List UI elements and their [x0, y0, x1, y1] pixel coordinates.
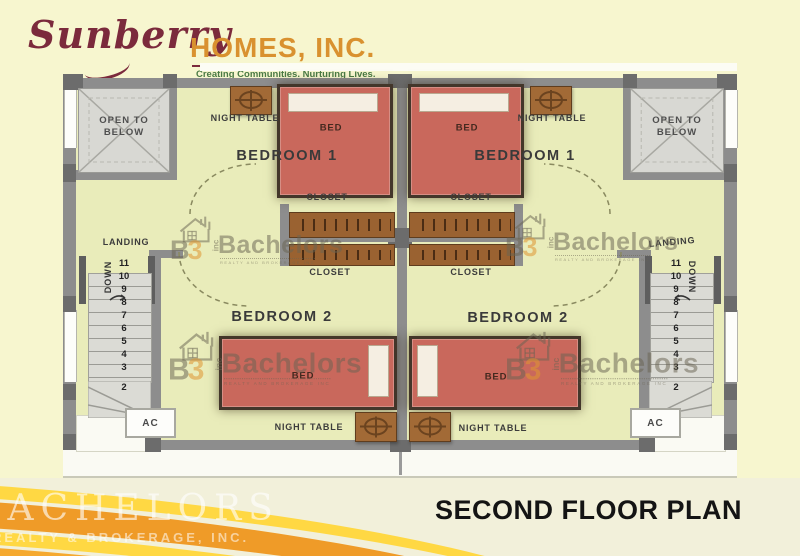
window-left-stair	[64, 310, 77, 382]
watermark-name: Bachelors	[553, 228, 678, 257]
bedroom1-label-right: BEDROOM 1	[474, 148, 575, 164]
closet-shelf	[409, 212, 515, 238]
column	[63, 384, 76, 400]
column	[724, 164, 737, 182]
footer-watermark-tagline: REALTY & BROKERAGE, INC.	[0, 530, 249, 545]
watermark-name: Bachelors	[218, 231, 343, 260]
page-title: SECOND FLOOR PLAN	[435, 495, 742, 526]
column	[63, 296, 76, 312]
watermark-tagline: REALTY AND BROKERAGE INC	[220, 258, 315, 265]
column	[639, 438, 655, 452]
down-label-left: DOWN	[103, 257, 115, 297]
closet-divider	[409, 238, 515, 242]
open-to-below-left: OPEN TO BELOW	[78, 88, 170, 173]
night-table-label: NIGHT TABLE	[459, 423, 528, 433]
column	[63, 164, 76, 182]
lamp-icon	[231, 87, 271, 114]
bedroom2-label-right: BEDROOM 2	[467, 310, 568, 326]
lamp-icon	[356, 413, 396, 441]
night-table-label: NIGHT TABLE	[211, 113, 280, 123]
column	[724, 384, 737, 400]
watermark-monogram: B3	[505, 232, 536, 263]
open-to-below-right: OPEN TO BELOW	[630, 88, 724, 173]
ac-label: AC	[647, 418, 663, 429]
page: Sunberry HOMES, INC. Creating Communitie…	[0, 0, 800, 556]
pillow	[368, 345, 389, 397]
night-table-bedroom1-right	[530, 86, 572, 115]
hanger-ticks	[413, 250, 511, 260]
watermark-name: Bachelors	[559, 348, 699, 380]
column	[724, 296, 737, 312]
down-arrow-icon	[673, 292, 691, 302]
column	[145, 438, 161, 452]
bedroom2-label-left: BEDROOM 2	[231, 309, 332, 325]
window-left-top	[64, 90, 77, 148]
door-arc-bedroom1-left	[188, 162, 258, 216]
bed-label: BED	[320, 123, 342, 134]
closet-label: CLOSET	[450, 267, 491, 277]
ac-unit-right: AC	[630, 408, 681, 438]
closet-label: CLOSET	[306, 192, 347, 202]
ac-label: AC	[142, 418, 158, 429]
bed-label: BED	[485, 372, 507, 383]
pillow	[288, 93, 378, 112]
footer-watermark-name: BACHELORS	[0, 488, 280, 529]
watermark-tagline: REALTY AND BROKERAGE INC	[555, 255, 650, 262]
watermark-tagline: REALTY AND BROKERAGE INC	[224, 378, 330, 386]
watermark-bachelors: B3 inc Bachelors REALTY AND BROKERAGE IN…	[168, 330, 358, 393]
watermark-bachelors: B3 inc Bachelors REALTY AND BROKERAGE IN…	[505, 330, 695, 393]
bed-bedroom1-right	[408, 84, 524, 198]
night-table-bedroom2-left	[355, 412, 397, 442]
bed-bedroom1-left	[277, 84, 393, 198]
night-table-bedroom2-right	[409, 412, 451, 442]
lamp-icon	[410, 413, 450, 441]
pillow	[417, 345, 438, 397]
watermark-tagline: REALTY AND BROKERAGE INC	[561, 378, 667, 386]
footer-band: BACHELORS REALTY & BROKERAGE, INC. SECON…	[0, 478, 800, 556]
watermark-name: Bachelors	[222, 348, 362, 380]
stair-step-number: 2	[111, 381, 137, 394]
stair-step-number: 4	[111, 348, 137, 361]
hanger-ticks	[413, 219, 511, 231]
stair-step-number: 7	[663, 309, 689, 322]
wall-center-extension	[399, 450, 402, 475]
brand-name: HOMES, INC.	[190, 32, 375, 64]
stair-rail-right-outer	[714, 256, 721, 304]
stair-step-number: 5	[111, 335, 137, 348]
column	[623, 74, 637, 88]
stair-step-number: 6	[111, 322, 137, 335]
column	[63, 434, 76, 450]
open-to-below-label: OPEN TO BELOW	[79, 115, 169, 139]
night-table-label: NIGHT TABLE	[275, 422, 344, 432]
watermark-monogram: B3	[170, 235, 201, 266]
night-table-label: NIGHT TABLE	[518, 113, 587, 123]
watermark-bachelors: B3 inc Bachelors REALTY AND BROKERAGE IN…	[505, 212, 675, 268]
down-arrow-icon	[109, 292, 127, 302]
pillow	[419, 93, 509, 112]
column	[163, 74, 177, 88]
bed-label: BED	[456, 123, 478, 134]
watermark-monogram: B3	[505, 352, 539, 387]
lamp-icon	[531, 87, 571, 114]
closet-shelf	[409, 244, 515, 266]
stair-step-number: 3	[111, 361, 137, 374]
column	[724, 434, 737, 450]
door-arc-bedroom1-right	[542, 162, 612, 216]
night-table-bedroom1-left	[230, 86, 272, 115]
open-to-below-label: OPEN TO BELOW	[631, 115, 723, 139]
closet-label: CLOSET	[450, 192, 491, 202]
bedroom1-label-left: BEDROOM 1	[236, 148, 337, 164]
window-right-top	[725, 90, 738, 148]
ac-unit-left: AC	[125, 408, 176, 438]
stair-rail-left-outer	[79, 256, 86, 304]
stair-step-number: 7	[111, 309, 137, 322]
closet-right-unit	[409, 206, 515, 266]
watermark-bachelors: B3 inc Bachelors REALTY AND BROKERAGE IN…	[170, 215, 340, 271]
landing-label-left: LANDING	[103, 237, 150, 247]
window-right-stair	[725, 310, 738, 382]
wall-center-party	[397, 78, 407, 452]
watermark-monogram: B3	[168, 352, 202, 387]
floor-plan: OPEN TO BELOW OPEN TO BELOW	[63, 70, 737, 478]
down-label-right: DOWN	[685, 257, 697, 297]
